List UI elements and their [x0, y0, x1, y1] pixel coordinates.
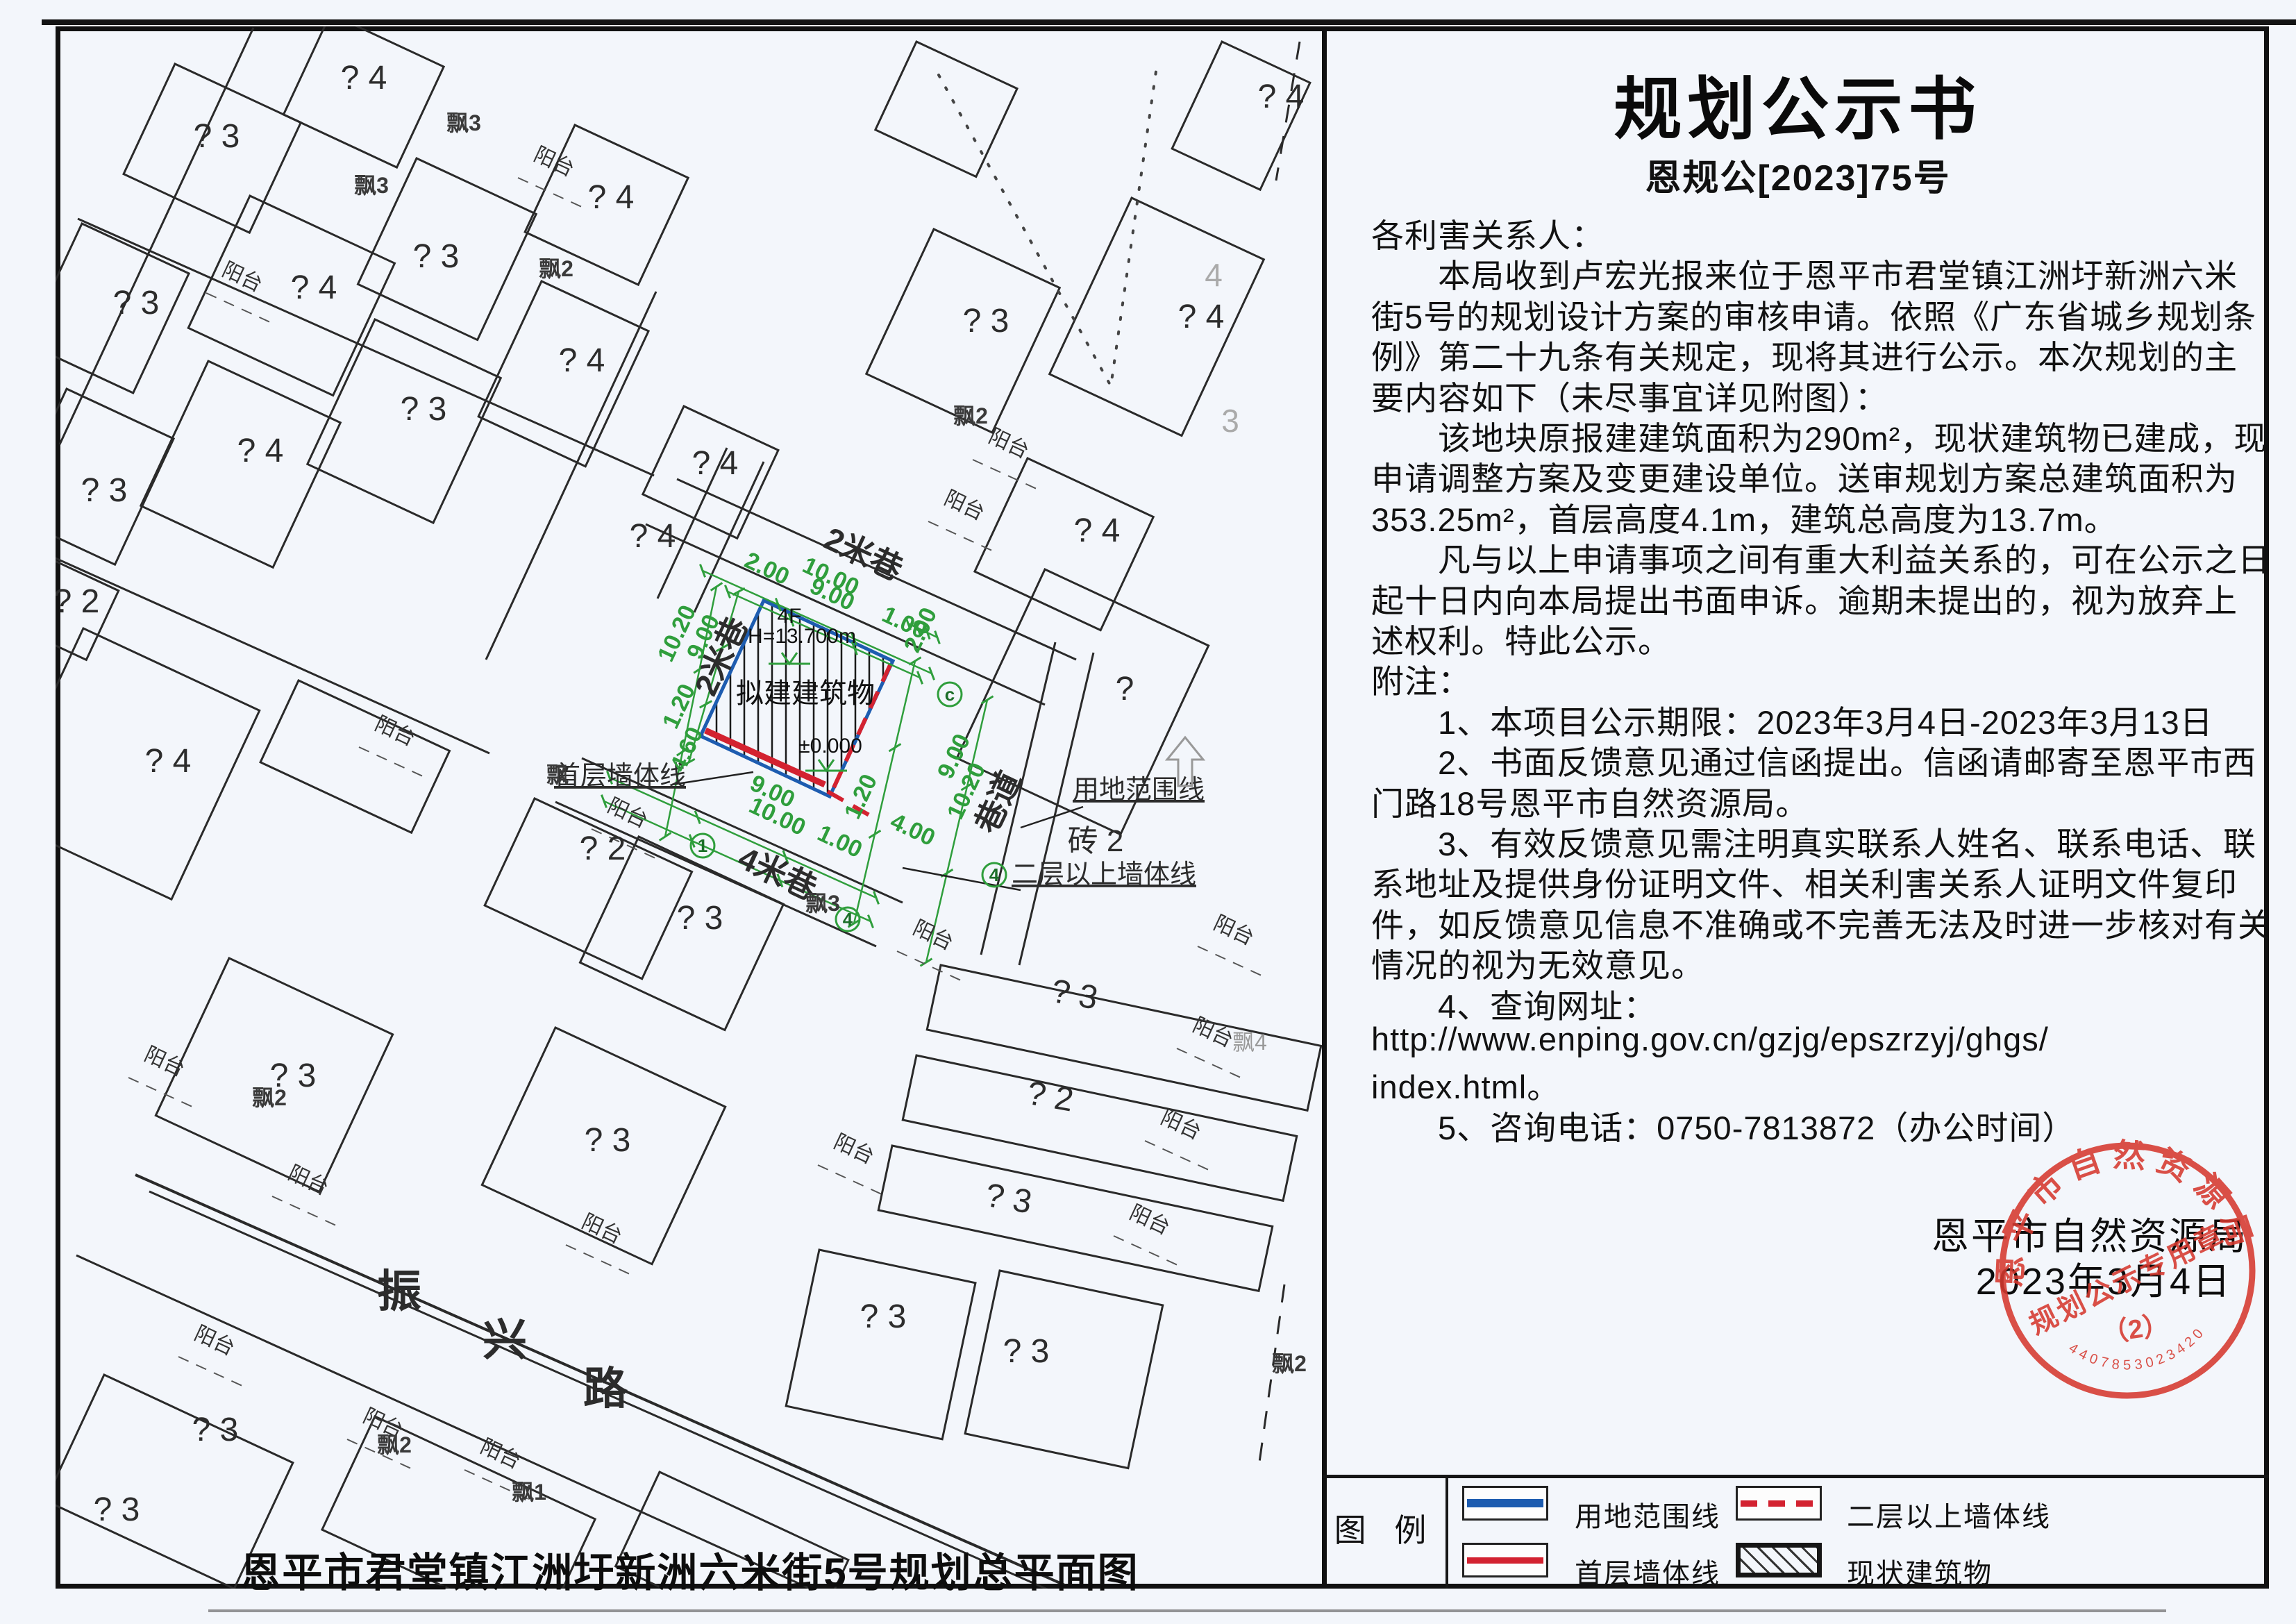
map-text-label: ?	[1116, 671, 1134, 708]
map-text-label: ? 3	[81, 472, 128, 509]
level-mark-triangle	[819, 760, 834, 771]
map-text-label: ? 3	[860, 1298, 907, 1335]
balcony-label: 阳台	[830, 1130, 878, 1169]
building-outline	[283, 26, 444, 167]
map-text-label: ? 4	[1178, 299, 1225, 335]
dimension-label: 4.00	[887, 808, 939, 851]
first-wall-line-sample	[1467, 1557, 1543, 1564]
map-text-label: ? 3	[401, 391, 447, 428]
map-text-label: 飘2	[252, 1085, 287, 1110]
legend-swatch-existing-building	[1736, 1543, 1822, 1577]
map-text-label: ? 3	[113, 285, 160, 321]
dimension-label: 1.20	[839, 770, 882, 823]
site-label: 拟建建筑物	[736, 678, 875, 709]
balcony-dashed-line	[206, 293, 270, 322]
map-text-label: ? 4	[692, 445, 739, 482]
map-text-label: ? 3	[677, 900, 723, 937]
legend-label-first-wall: 首层墙体线	[1575, 1551, 1720, 1591]
site-plan-map: 14c4阳台阳台阳台阳台阳台阳台阳台阳台阳台阳台阳台阳台阳台阳台阳台阳台阳台阳台…	[56, 26, 1324, 1589]
building-outline	[903, 1055, 1297, 1200]
map-text-label: ? 4	[291, 269, 337, 306]
map-text-label: ? 2	[1024, 1075, 1076, 1119]
map-text-label: ? 3	[192, 1412, 239, 1448]
map-text-label: ? 4	[588, 179, 635, 216]
building-outline	[1050, 198, 1264, 436]
map-text-label: 飘2	[377, 1432, 412, 1457]
balcony-dashed-line	[128, 1078, 192, 1107]
dimension-label: 1.00	[814, 820, 866, 863]
building-outline	[260, 680, 449, 832]
balcony-label: 阳台	[530, 143, 578, 181]
balcony-dashed-line	[818, 1165, 882, 1194]
panel-divider	[1322, 26, 1327, 1589]
balcony-label: 阳台	[191, 1322, 238, 1360]
axis-bubble-label: 1	[698, 835, 707, 856]
balcony-dashed-line	[973, 460, 1037, 489]
map-text-label: ? 3	[1048, 973, 1100, 1017]
balcony-dashed-line	[897, 951, 961, 980]
legend-label-upper-wall: 二层以上墙体线	[1847, 1494, 2051, 1534]
street-line	[135, 1175, 1139, 1589]
map-text-label: 飘4	[1232, 1030, 1267, 1055]
map-text-label: 振	[377, 1266, 421, 1316]
map-text-label: ? 4	[145, 743, 192, 780]
map-text-label: ? 3	[413, 238, 460, 275]
map-text-label: ? 4	[1258, 78, 1305, 115]
map-text-label: 飘1	[512, 1480, 546, 1505]
site-label: ±0.000	[798, 735, 862, 757]
building-outline	[485, 798, 692, 979]
building-outline	[786, 1250, 975, 1439]
map-text-label: ? 3	[585, 1122, 631, 1159]
balcony-dashed-line	[272, 1196, 336, 1225]
street-line	[1019, 653, 1093, 965]
balcony-label: 阳台	[578, 1210, 626, 1248]
balcony-dashed-line	[178, 1357, 242, 1386]
map-text-label: 飘3	[354, 173, 389, 198]
map-text-label: ? 4	[559, 342, 605, 379]
site-label: H=13.700m	[748, 625, 856, 648]
official-stamp: 恩平市自然资源局 4407853023420 规划公示专用章 （2）	[1987, 1130, 2268, 1411]
legend-top-rule	[1322, 1475, 2269, 1478]
legend-heading: 图 例	[1322, 1505, 1448, 1551]
stamp-svg: 恩平市自然资源局 4407853023420 规划公示专用章 （2）	[1987, 1130, 2268, 1411]
scan-artifact-line	[208, 1609, 2166, 1612]
balcony-label: 阳台	[910, 916, 957, 955]
street-line	[149, 1191, 1130, 1589]
axis-bubble-label: 4	[989, 864, 1000, 885]
map-text-label: ? 4	[630, 518, 676, 555]
boundary-line-sample	[1467, 1499, 1543, 1507]
leader-line	[903, 868, 1021, 890]
legend-swatch-upper-wall	[1736, 1486, 1822, 1521]
site-plan-svg: 14c4阳台阳台阳台阳台阳台阳台阳台阳台阳台阳台阳台阳台阳台阳台阳台阳台阳台阳台…	[56, 26, 1324, 1589]
map-text-label: ? 3	[1003, 1333, 1050, 1370]
building-outline	[1172, 42, 1310, 190]
balcony-label: 阳台	[1210, 912, 1257, 950]
map-text-label: ? 4	[237, 433, 284, 469]
balcony-dashed-line	[1177, 1048, 1241, 1078]
balcony-dashed-line	[1198, 946, 1262, 976]
legend-label-boundary: 用地范围线	[1575, 1494, 1720, 1534]
map-text-label: 兴	[483, 1315, 527, 1365]
map-text-label: 用地范围线	[1073, 776, 1205, 805]
balcony-dashed-line	[1145, 1141, 1209, 1170]
balcony-label: 阳台	[1189, 1014, 1237, 1052]
notice-title: 规划公示书	[1327, 54, 2269, 153]
street-line	[56, 552, 489, 753]
building-outline	[975, 458, 1153, 630]
balcony-label: 阳台	[141, 1043, 188, 1081]
balcony-label: 阳台	[285, 1162, 332, 1200]
street-line	[694, 462, 764, 612]
map-text-label: ? 2	[580, 830, 626, 867]
map-text-label: ? 3	[963, 303, 1009, 340]
map-text-label: 飘3	[805, 891, 840, 916]
map-text-label: 4	[1205, 257, 1223, 293]
level-mark-triangle	[782, 653, 797, 664]
map-text-label: 飘2	[539, 256, 573, 281]
map-text-label: 飘	[546, 762, 569, 787]
map-text-label: 飘3	[446, 110, 481, 135]
map-text-label: ? 3	[94, 1491, 140, 1528]
map-text-label: ? 3	[194, 118, 240, 155]
map-text-label: 飘2	[1272, 1351, 1307, 1376]
upper-wall-line-sample	[1741, 1500, 1817, 1507]
street-line	[1258, 1284, 1284, 1472]
building-outline	[875, 42, 1017, 177]
legend-swatch-first-wall	[1462, 1543, 1548, 1577]
map-text-label: ? 4	[1074, 512, 1121, 549]
building-outline	[965, 1271, 1163, 1468]
balcony-label: 阳台	[219, 258, 266, 296]
legend-swatch-boundary	[1462, 1486, 1548, 1521]
building-outline	[878, 1146, 1273, 1291]
balcony-label: 阳台	[941, 487, 988, 525]
map-text-label: 3	[1221, 403, 1239, 439]
scanned-notice-page: 14c4阳台阳台阳台阳台阳台阳台阳台阳台阳台阳台阳台阳台阳台阳台阳台阳台阳台阳台…	[0, 0, 2296, 1624]
balcony-dashed-line	[928, 521, 992, 551]
map-text-label: 砖 2	[1068, 824, 1124, 858]
scan-top-edge	[42, 19, 2296, 25]
balcony-dashed-line	[359, 747, 423, 776]
notice-line: http://www.enping.gov.cn/gzjg/epszrzyj/g…	[1371, 1020, 2267, 1058]
axis-bubble-label: 4	[843, 909, 853, 930]
map-text-label: 路	[583, 1364, 628, 1414]
axis-bubble-label: c	[945, 684, 955, 705]
balcony-label: 阳台	[1126, 1201, 1173, 1239]
notice-doc-number: 恩规公[2023]75号	[1327, 149, 2269, 201]
legend-label-existing-building: 现状建筑物	[1847, 1551, 1993, 1591]
balcony-label: 阳台	[985, 425, 1032, 463]
stamp-sub-text: （2）	[2100, 1311, 2171, 1349]
map-text-label: 二层以上墙体线	[1012, 860, 1196, 889]
balcony-dashed-line	[518, 178, 582, 207]
dimension-label: 2.00	[741, 547, 794, 590]
map-text-label: 飘2	[953, 403, 988, 428]
balcony-dashed-line	[1114, 1236, 1178, 1265]
map-text-label: ? 2	[56, 583, 99, 620]
map-text-label: 首层墙体线	[554, 762, 686, 791]
map-caption: 恩平市君堂镇江洲圩新洲六米街5号规划总平面图	[56, 1540, 1324, 1598]
street-line	[60, 28, 253, 444]
map-text-label: ? 4	[341, 60, 387, 97]
map-text-label: ? 3	[982, 1177, 1034, 1221]
